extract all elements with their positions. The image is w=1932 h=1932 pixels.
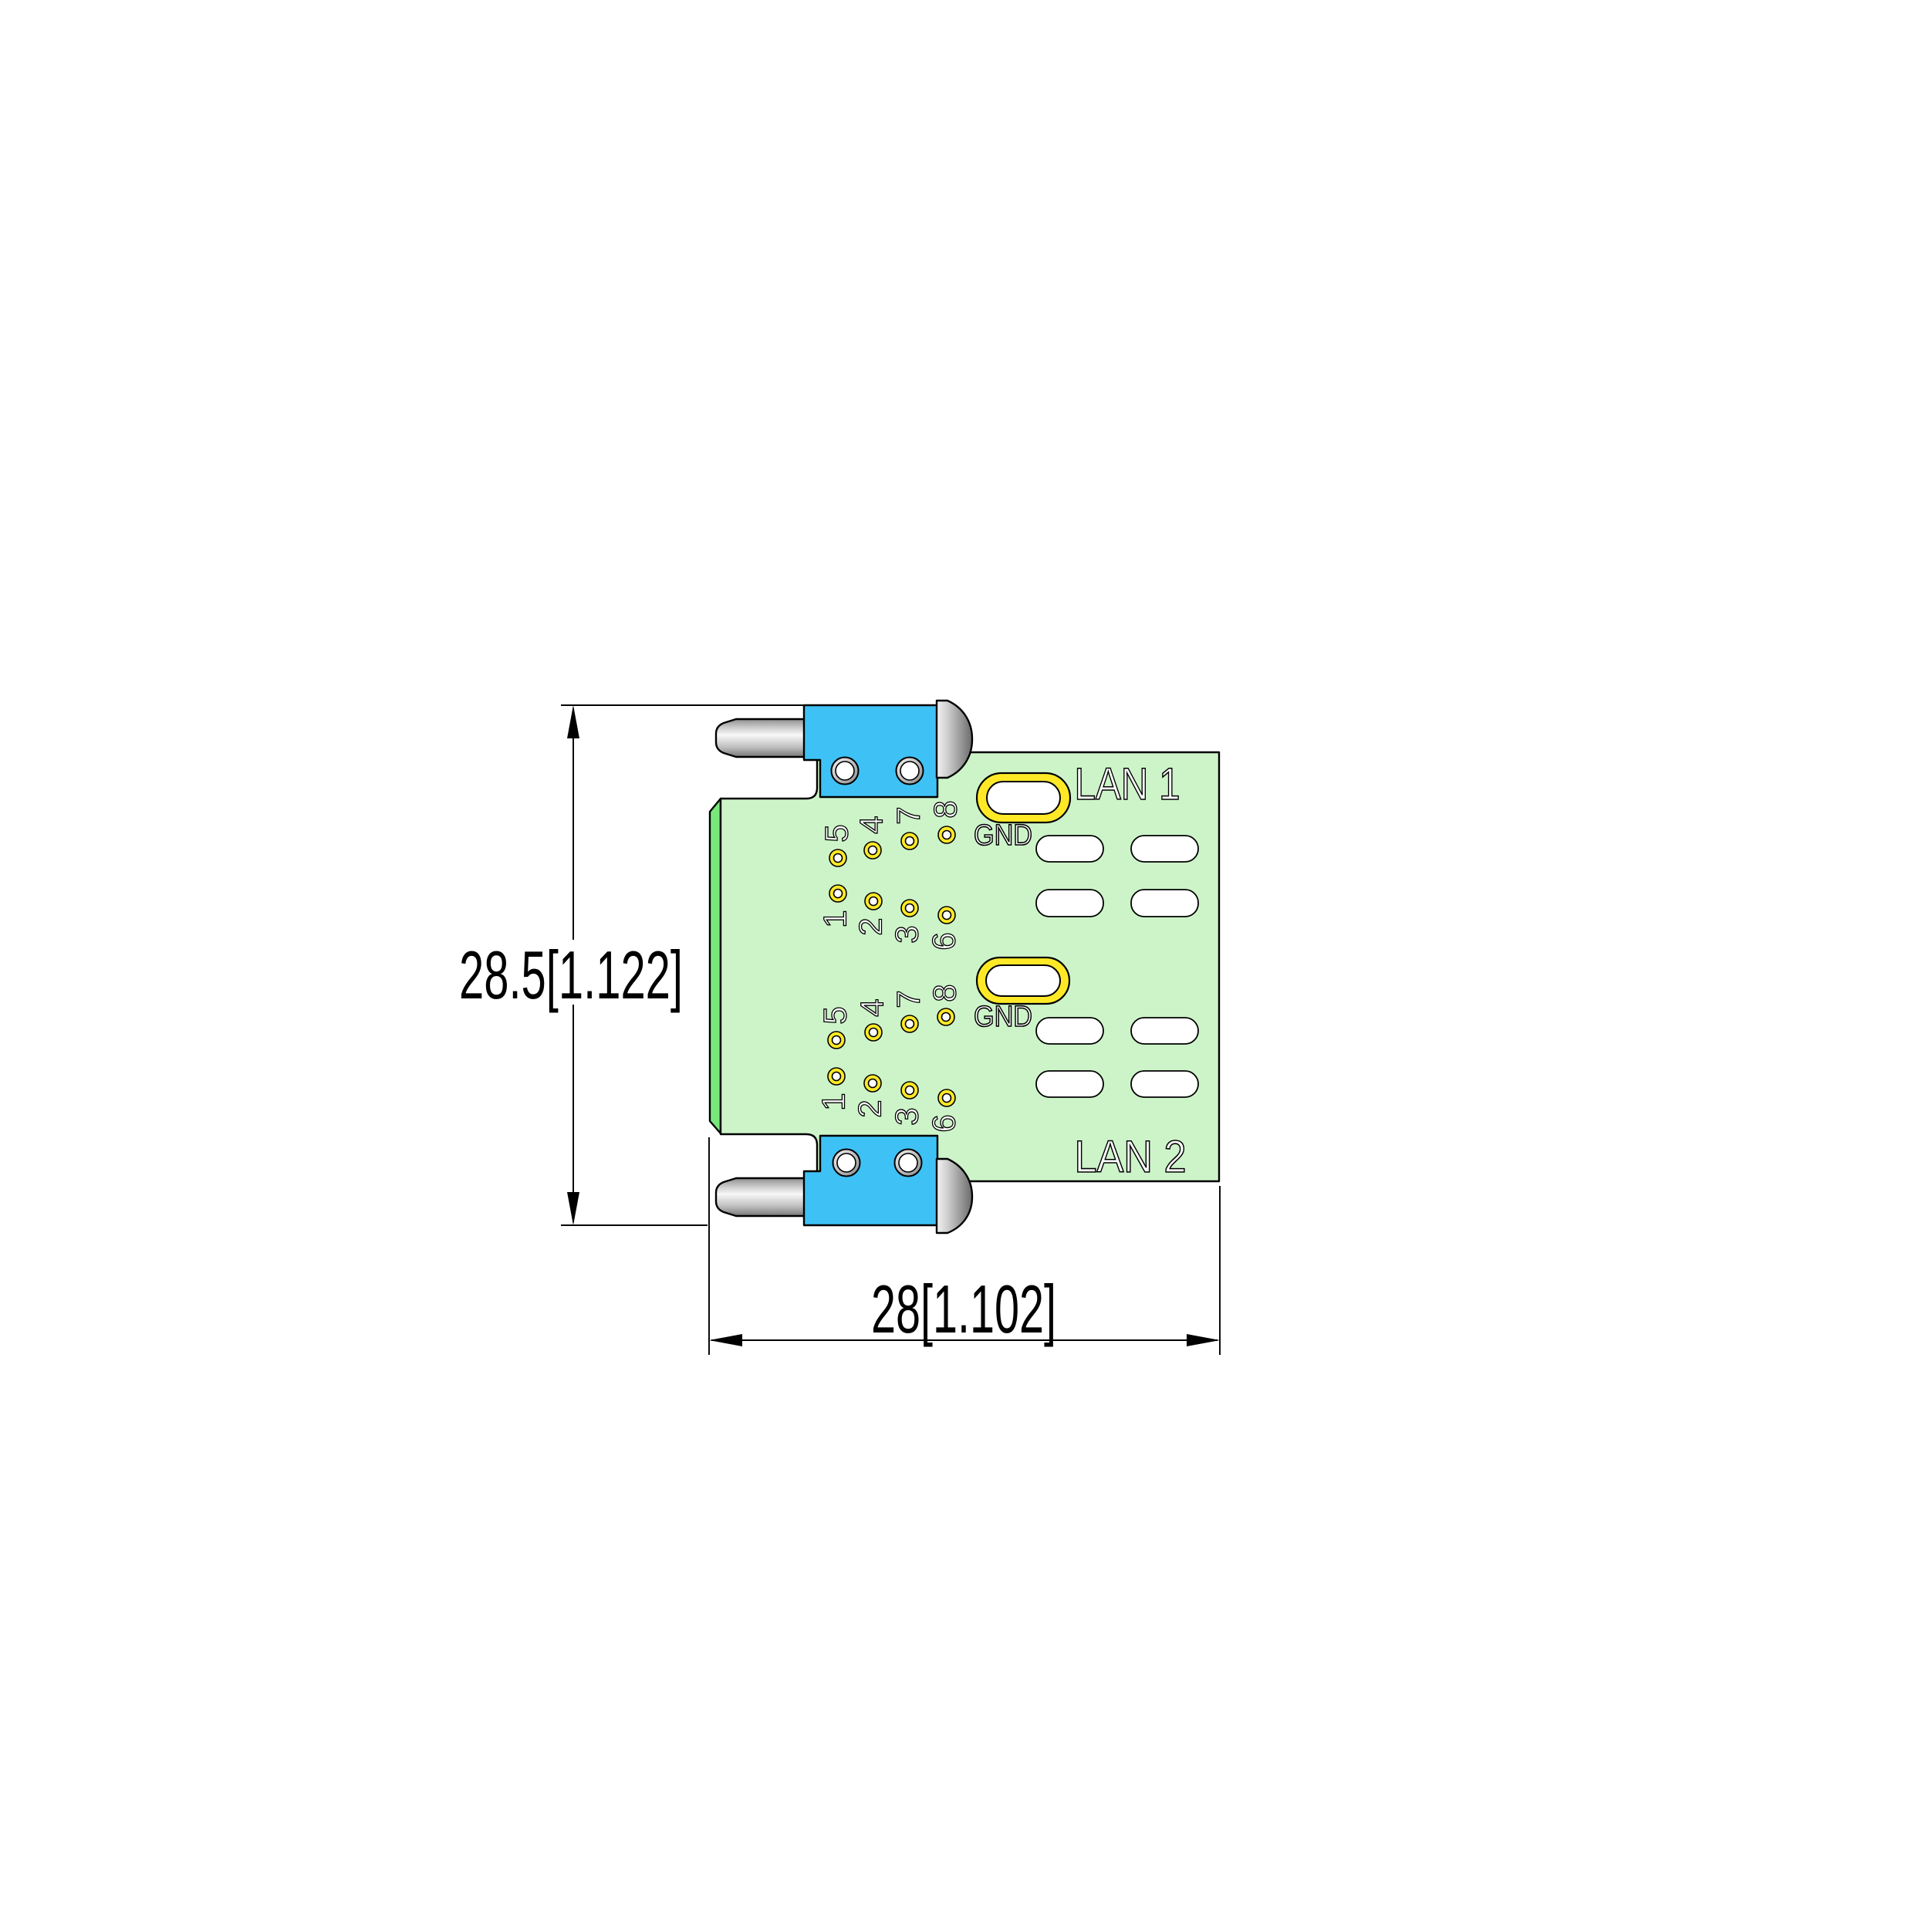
pin-pad-lan1-3 — [901, 900, 918, 917]
pin-pad-lan2-6 — [938, 1089, 955, 1106]
top-screw-hole-left — [832, 758, 859, 785]
pin-label-lan1-8: 8 — [927, 800, 964, 818]
top-screw-hole-right — [897, 758, 924, 785]
lan2-label: LAN 2 — [1075, 1132, 1187, 1182]
bottom-screw-hole-left — [833, 1150, 860, 1177]
gnd-pad-lan1 — [977, 773, 1070, 822]
width-dimension-text: 28[1.102] — [871, 1271, 1056, 1347]
pin-label-lan1-1: 1 — [817, 910, 853, 927]
bottom-connector-hardware — [716, 1136, 972, 1233]
pin-label-lan2-3: 3 — [889, 1107, 925, 1125]
gnd-pad-lan2 — [977, 958, 1069, 1004]
vent-slot — [1131, 836, 1198, 862]
pin-pad-lan2-3 — [901, 1082, 918, 1099]
pin-label-lan2-4: 4 — [854, 998, 890, 1016]
height-arrow-down — [567, 1192, 579, 1225]
pcb-board — [710, 752, 1219, 1181]
pin-label-lan2-7: 7 — [890, 990, 927, 1008]
pin-pad-lan1-1 — [829, 885, 846, 902]
pin-pad-lan1-7 — [901, 833, 918, 849]
pcb-technical-drawing: LAN 1 GND — [0, 0, 1932, 1932]
pin-label-lan2-6: 6 — [926, 1114, 962, 1132]
pin-label-lan2-2: 2 — [852, 1099, 888, 1117]
bottom-mounting-pin — [716, 1178, 805, 1216]
board-left-edge-chamfer — [710, 799, 721, 1133]
lan2-gnd-label: GND — [974, 1001, 1032, 1033]
pin-pad-lan2-5 — [828, 1032, 845, 1049]
pin-pad-lan1-8 — [938, 826, 955, 843]
board-face — [721, 752, 1219, 1181]
pin-pad-lan2-8 — [937, 1008, 954, 1025]
pin-label-lan1-2: 2 — [853, 917, 889, 935]
pin-pad-lan2-1 — [828, 1068, 845, 1085]
top-mounting-pin — [716, 719, 805, 757]
pin-pad-lan2-7 — [901, 1015, 918, 1032]
pin-pad-lan2-2 — [864, 1075, 881, 1092]
bottom-connector-block — [804, 1136, 937, 1225]
vent-slot — [1036, 890, 1103, 917]
vent-slot — [1036, 1071, 1103, 1097]
pin-pad-lan1-5 — [829, 849, 846, 866]
vent-slot — [1036, 836, 1103, 862]
pin-label-lan1-6: 6 — [926, 932, 962, 950]
width-arrow-left — [709, 1334, 742, 1346]
lan1-label: LAN 1 — [1075, 759, 1180, 809]
pin-label-lan2-5: 5 — [817, 1006, 853, 1024]
bottom-screw-hole-right — [895, 1150, 922, 1177]
width-arrow-right — [1187, 1334, 1220, 1346]
pin-pad-lan1-4 — [864, 842, 881, 859]
pin-label-lan1-4: 4 — [853, 816, 890, 833]
pin-label-lan1-5: 5 — [819, 824, 855, 842]
pin-pad-lan1-2 — [865, 893, 882, 910]
pin-label-lan1-3: 3 — [889, 925, 925, 943]
vent-slot — [1131, 1071, 1198, 1097]
top-connector-hardware — [716, 701, 972, 797]
lan1-gnd-label: GND — [974, 819, 1032, 852]
pin-label-lan1-7: 7 — [890, 806, 927, 824]
pin-pad-lan1-6 — [938, 907, 955, 924]
top-connector-block — [804, 705, 937, 797]
gnd-pad-lan1-hole — [987, 782, 1060, 814]
gnd-pad-lan2-hole — [986, 965, 1060, 996]
vent-slot — [1131, 1018, 1198, 1044]
pin-label-lan2-8: 8 — [927, 984, 963, 1001]
pin-pad-lan2-4 — [865, 1024, 882, 1041]
height-arrow-up — [567, 705, 579, 738]
pin-label-lan2-1: 1 — [816, 1093, 852, 1110]
vent-slot — [1131, 890, 1198, 917]
height-dimension-text: 28.5[1.122] — [459, 937, 683, 1013]
vent-slot — [1036, 1018, 1103, 1044]
